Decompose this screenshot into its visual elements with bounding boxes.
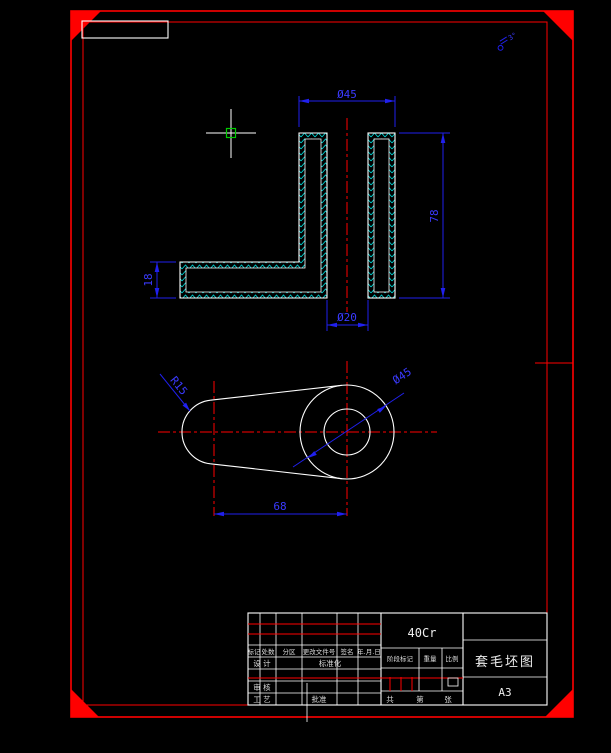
tb-approve: 批准 [312,694,327,704]
dim-text-bore: Ø20 [337,311,357,324]
tb-drawing-title: 套毛坯图 [475,654,535,670]
corner-trim-bottom-left [71,689,99,717]
tb-sign: 签名 [341,647,354,656]
cad-canvas[interactable]: 3° Ø45 78 [0,0,611,753]
tb-design: 设 计 [253,658,271,668]
crosshair-cursor [206,109,256,158]
dim-text-boss-diameter: Ø45 [390,365,414,387]
tb-date: 年.月.日 [357,647,381,656]
dimension-center-distance: 68 [214,500,347,516]
dimension-height: 78 [399,133,450,298]
tb-no: 第 [416,694,424,704]
cad-viewport[interactable]: 3° Ø45 78 [0,0,611,753]
tb-material: 40Cr [408,626,437,640]
dimension-boss-diameter: Ø45 [293,365,414,467]
dimension-base-thickness: 18 [142,262,176,298]
revision-strip-box [82,21,168,38]
tb-sheets: 张 [444,695,452,704]
corner-trim-bottom-right [545,689,573,717]
tb-stage: 阶段标记 [387,654,414,663]
plan-view: 68 R15 Ø45 [158,361,437,516]
tb-zone: 分区 [283,647,297,656]
tb-count: 处数 [262,647,276,656]
tb-change-no: 更改文件号 [303,647,336,656]
scale-box-icon [448,678,458,686]
dimension-end-radius: R15 [160,374,190,411]
draft-angle-text: 3° [507,31,518,42]
tb-scale: 比例 [446,654,459,663]
tb-review: 审 核 [253,682,271,692]
sheet-outer-frame [71,11,573,717]
dimension-bore: Ø20 [327,300,368,331]
dim-text-base-thickness: 18 [142,273,155,286]
tb-sheet-size: A3 [498,686,511,699]
dim-text-height: 78 [428,209,441,222]
title-block: 标记 处数 分区 更改文件号 签名 年.月.日 设 计 标准化 审 核 工 艺 … [248,613,548,705]
dim-text-outer-diameter: Ø45 [337,88,357,101]
draft-angle-annotation: 3° [495,31,519,51]
section-right-core [374,139,389,292]
draft-angle-symbol-icon [497,45,504,52]
section-view: Ø45 78 18 Ø20 [142,88,450,331]
tb-process: 工 艺 [253,695,270,704]
dim-text-center-distance: 68 [273,500,286,513]
dim-text-end-radius: R15 [167,374,190,398]
corner-trim-top-left [71,11,101,41]
tb-total: 共 [386,695,394,704]
tb-mark: 标记 [248,647,262,656]
tb-weight: 重量 [424,655,438,663]
tb-standardize: 标准化 [319,658,342,668]
section-right-allowance [368,133,395,298]
drawing-inner-frame [83,22,547,705]
